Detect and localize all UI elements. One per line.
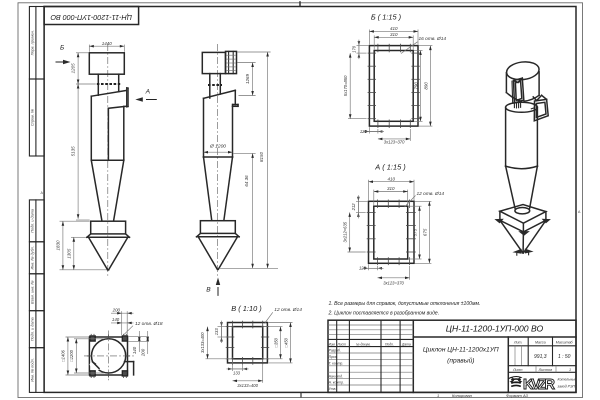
- svg-text:□1406: □1406: [61, 349, 66, 361]
- svg-text:завод РЭП: завод РЭП: [557, 385, 576, 389]
- svg-text:□350: □350: [273, 337, 278, 347]
- svg-text:5135: 5135: [71, 146, 76, 157]
- svg-text:№ докум.: № докум.: [356, 342, 371, 346]
- svg-text:□1200: □1200: [69, 349, 74, 361]
- svg-text:Лист: Лист: [337, 342, 347, 346]
- svg-text:1440: 1440: [102, 41, 113, 46]
- svg-text:890: 890: [424, 82, 429, 90]
- svg-text:123: 123: [360, 129, 368, 134]
- svg-text:12 отв. Ø14: 12 отв. Ø14: [274, 307, 302, 313]
- svg-text:Подп. и дата: Подп. и дата: [30, 209, 34, 233]
- svg-text:2. Циклон поставляется в разоб: 2. Циклон поставляется в разобранном вид…: [328, 311, 440, 317]
- svg-text:Б ( 1:15 ): Б ( 1:15 ): [371, 13, 402, 22]
- svg-text:1. Все размеры для справок, до: 1. Все размеры для справок, допустимые о…: [329, 301, 481, 307]
- svg-text:Масса: Масса: [535, 341, 546, 345]
- svg-text:1: 1: [569, 368, 571, 372]
- svg-text:Пров.: Пров.: [329, 355, 338, 359]
- svg-text:Б: Б: [60, 45, 65, 52]
- svg-text:133: 133: [233, 370, 241, 375]
- svg-text:12 отв. Ø18: 12 отв. Ø18: [135, 321, 163, 327]
- svg-text:170: 170: [352, 45, 357, 53]
- svg-text:Инв. № дубл.: Инв. № дубл.: [30, 246, 34, 269]
- svg-text:Масштаб: Масштаб: [556, 341, 574, 345]
- svg-text:Разраб.: Разраб.: [329, 349, 341, 353]
- svg-text:Н. контр.: Н. контр.: [329, 381, 344, 385]
- svg-text:16 отв. Ø14: 16 отв. Ø14: [419, 36, 447, 42]
- svg-text:Инв. № подл.: Инв. № подл.: [30, 358, 34, 382]
- svg-text:1305: 1305: [67, 248, 72, 259]
- svg-text:KVZR: KVZR: [523, 377, 556, 393]
- svg-text:675: 675: [423, 228, 428, 236]
- svg-text:Взам. инв. №: Взам. инв. №: [30, 280, 34, 303]
- svg-text:Дата: Дата: [401, 342, 411, 346]
- svg-text:200: 200: [141, 348, 146, 357]
- svg-text:Изм: Изм: [329, 342, 336, 346]
- svg-text:Нач.отд.: Нач.отд.: [329, 374, 343, 378]
- svg-text:3х133=400: 3х133=400: [200, 332, 205, 353]
- svg-text:Циклон ЦН-11-1200х1УП: Циклон ЦН-11-1200х1УП: [423, 346, 499, 353]
- svg-text:123: 123: [359, 266, 367, 271]
- svg-text:Справ. №: Справ. №: [30, 109, 34, 126]
- svg-text:Котельный: Котельный: [558, 378, 577, 382]
- svg-text:В: В: [206, 287, 211, 294]
- svg-text:64 36: 64 36: [244, 175, 249, 187]
- svg-text:Т. контр.: Т. контр.: [329, 362, 344, 366]
- svg-text:5х170=850: 5х170=850: [343, 75, 348, 96]
- svg-text:1: 1: [437, 393, 439, 398]
- svg-text:□450: □450: [283, 337, 288, 347]
- svg-text:Формат А3: Формат А3: [506, 393, 529, 398]
- svg-text:140: 140: [132, 346, 137, 354]
- svg-text:1 : 50: 1 : 50: [558, 354, 571, 360]
- svg-text:В ( 1:10 ): В ( 1:10 ): [231, 304, 262, 313]
- svg-text:3х133=400: 3х133=400: [237, 383, 258, 388]
- svg-text:310: 310: [387, 186, 395, 191]
- svg-text:Подп. и дата: Подп. и дата: [30, 317, 34, 341]
- svg-text:Ø 1200: Ø 1200: [209, 144, 226, 150]
- svg-text:Утв.: Утв.: [329, 387, 337, 391]
- svg-text:ЦН-11-1200-1УП-000 ВО: ЦН-11-1200-1УП-000 ВО: [50, 13, 132, 22]
- svg-text:Листов: Листов: [538, 368, 553, 372]
- svg-text:1205: 1205: [71, 63, 76, 74]
- svg-text:410: 410: [387, 176, 395, 181]
- svg-text:1269: 1269: [245, 73, 250, 84]
- svg-text:Подп.: Подп.: [385, 342, 394, 346]
- svg-text:8150: 8150: [259, 151, 264, 162]
- svg-text:3х123=370: 3х123=370: [383, 281, 404, 286]
- svg-text:Лист: Лист: [512, 368, 523, 372]
- svg-text:200: 200: [112, 308, 121, 313]
- svg-text:140: 140: [112, 317, 120, 322]
- svg-text:1830: 1830: [56, 240, 61, 251]
- svg-text:(правый): (правый): [447, 356, 474, 364]
- svg-text:А: А: [145, 89, 151, 96]
- svg-text:ЦН-11-1200-1УП-000 ВО: ЦН-11-1200-1УП-000 ВО: [446, 324, 544, 334]
- svg-text:575: 575: [413, 228, 418, 236]
- svg-text:12 отв. Ø14: 12 отв. Ø14: [417, 191, 445, 197]
- svg-text:3х212=635: 3х212=635: [342, 221, 347, 242]
- svg-text:212: 212: [351, 203, 356, 212]
- svg-text:310: 310: [390, 32, 398, 37]
- svg-text:Копировал: Копировал: [452, 393, 473, 398]
- svg-text:991,3: 991,3: [534, 354, 547, 360]
- svg-text:Лит.: Лит.: [513, 341, 522, 345]
- svg-text:410: 410: [390, 26, 398, 31]
- svg-text:Перв. примен.: Перв. примен.: [30, 30, 34, 55]
- svg-text:790: 790: [414, 82, 419, 90]
- svg-text:3х123=370: 3х123=370: [384, 140, 405, 145]
- svg-text:А ( 1:15 ): А ( 1:15 ): [374, 163, 406, 172]
- svg-text:133: 133: [214, 328, 219, 336]
